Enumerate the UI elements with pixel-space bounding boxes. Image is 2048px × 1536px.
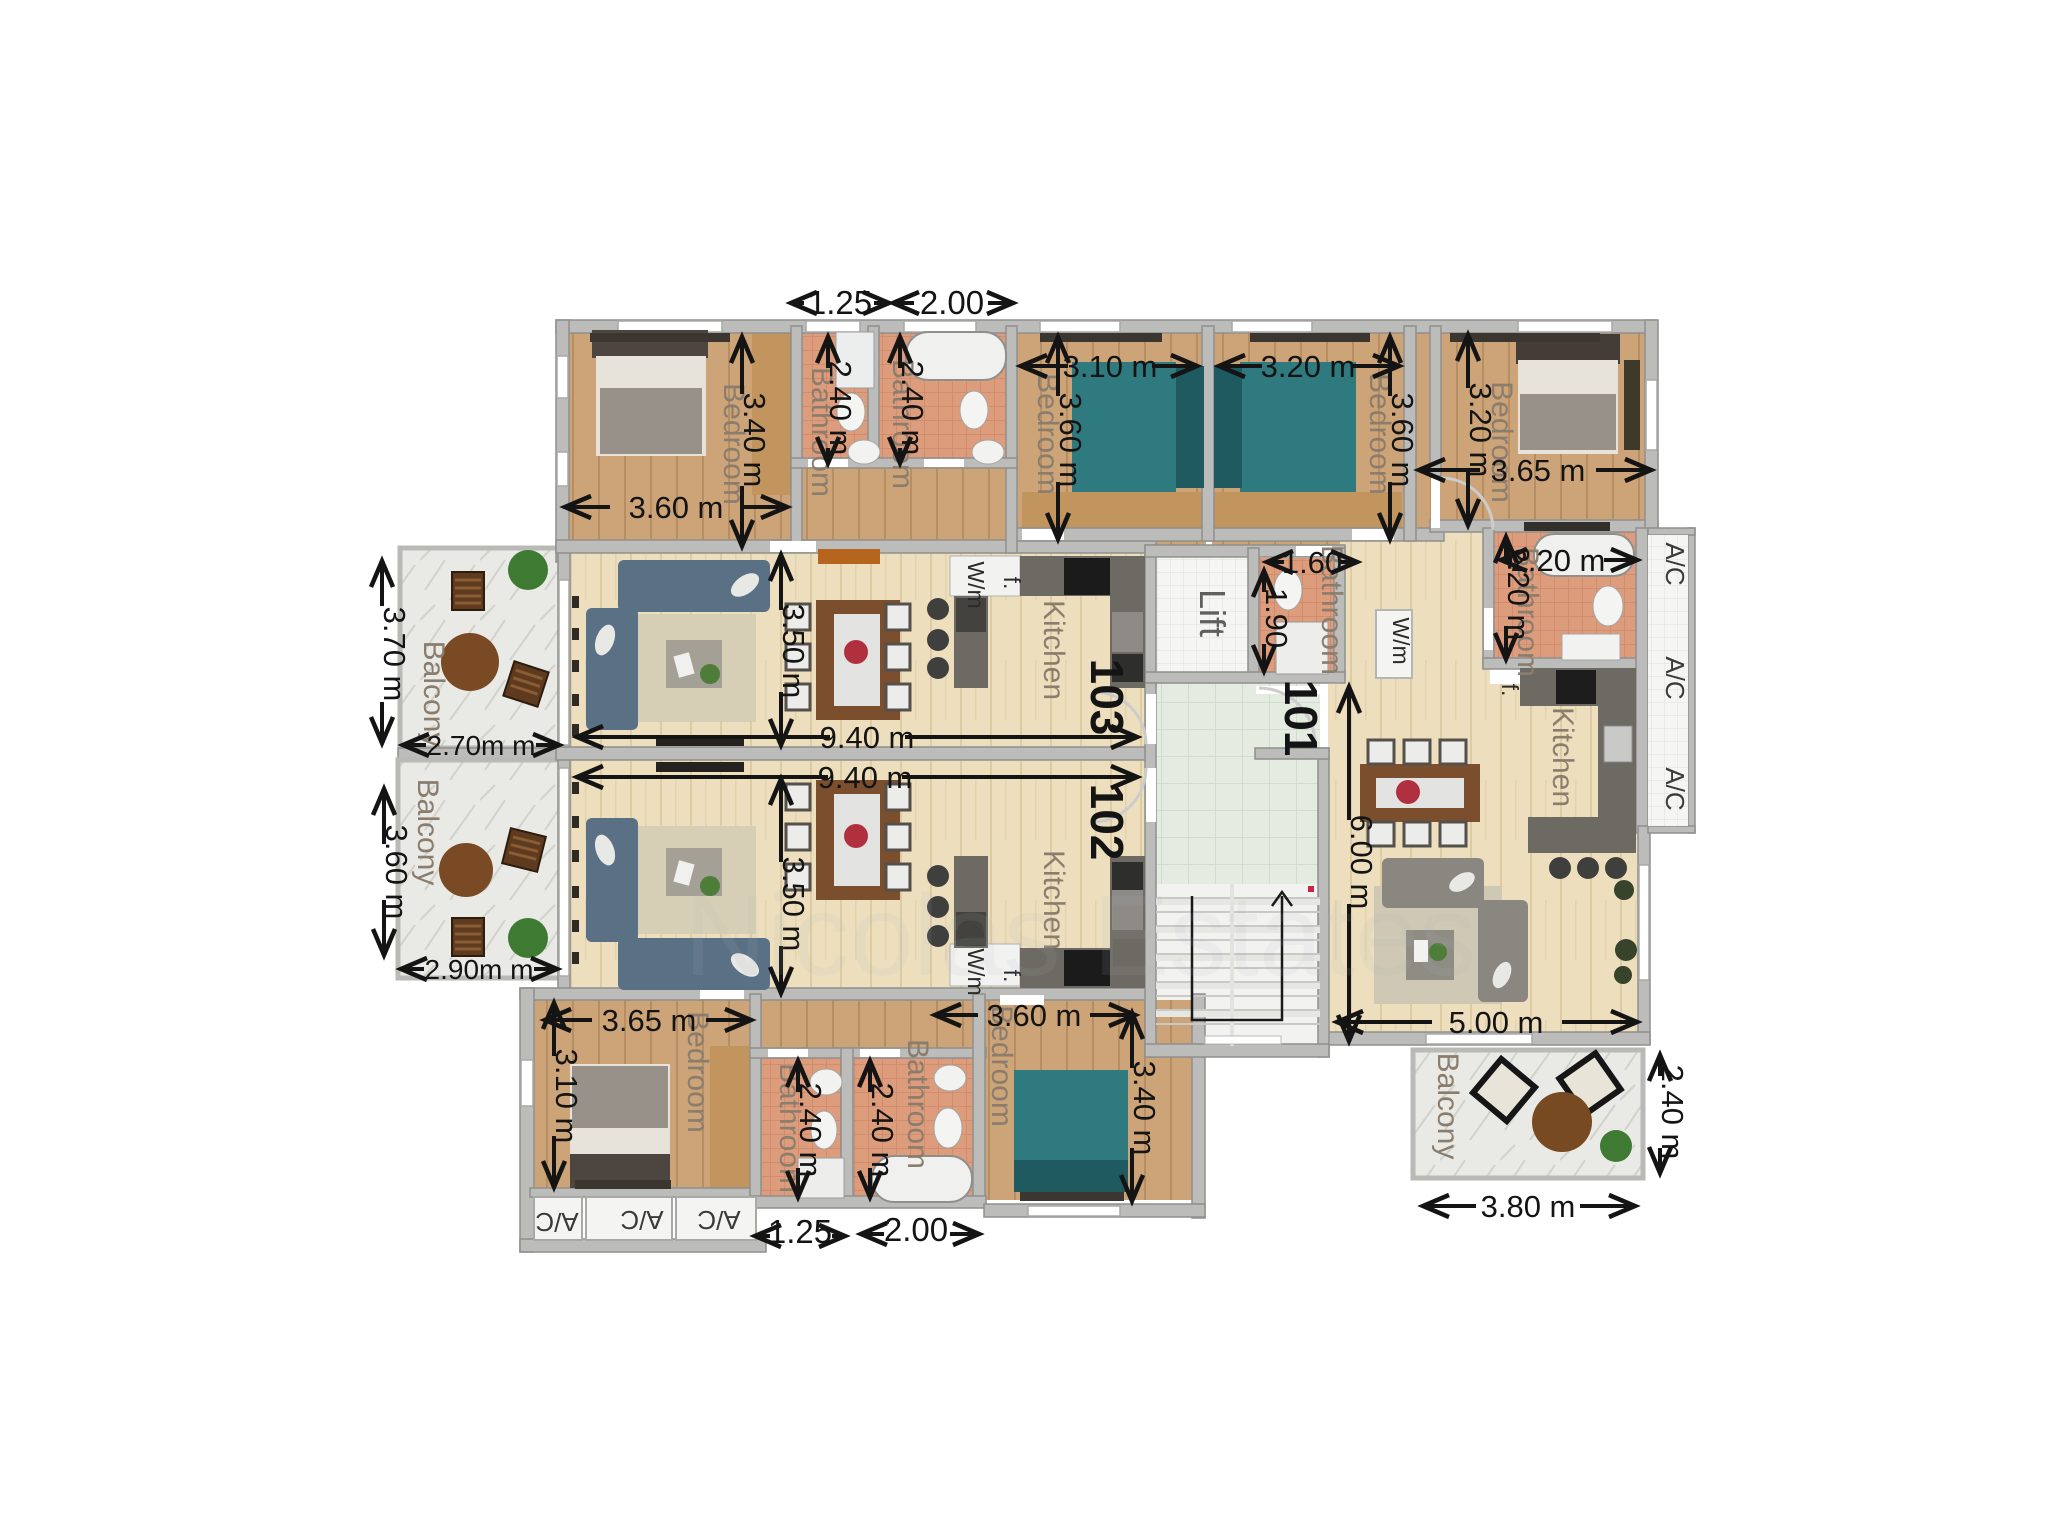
- svg-text:A/C: A/C: [697, 1205, 740, 1235]
- svg-text:Lift: Lift: [1192, 589, 1233, 637]
- svg-text:2.40 m: 2.40 m: [1655, 1065, 1690, 1160]
- svg-text:2.90m m: 2.90m m: [425, 954, 534, 985]
- svg-text:2.20 m: 2.20 m: [1501, 546, 1536, 641]
- svg-text:3.50 m: 3.50 m: [776, 604, 811, 699]
- svg-text:Balcony: Balcony: [1431, 1053, 1464, 1160]
- svg-text:3.40 m: 3.40 m: [737, 393, 772, 488]
- svg-text:2.00: 2.00: [884, 1211, 948, 1248]
- svg-text:9.40 m: 9.40 m: [818, 760, 913, 795]
- svg-text:3.60 m: 3.60 m: [629, 490, 724, 525]
- svg-text:103: 103: [1081, 659, 1133, 736]
- svg-text:9.40 m: 9.40 m: [820, 720, 915, 755]
- svg-text:A/C: A/C: [620, 1205, 663, 1235]
- svg-text:A/C: A/C: [1660, 656, 1690, 699]
- svg-text:3.60 m: 3.60 m: [987, 998, 1082, 1033]
- svg-text:3.65 m: 3.65 m: [602, 1003, 697, 1038]
- svg-text:A/C: A/C: [1660, 542, 1690, 585]
- svg-text:3.70 m: 3.70 m: [377, 607, 412, 702]
- svg-text:3.60 m: 3.60 m: [1385, 393, 1420, 488]
- svg-text:2.40 m: 2.40 m: [793, 1083, 828, 1178]
- svg-text:W/m: W/m: [1388, 617, 1414, 664]
- svg-text:A/C: A/C: [1660, 767, 1690, 810]
- svg-text:2.70m m: 2.70m m: [427, 730, 536, 761]
- svg-text:3.60 m: 3.60 m: [1053, 393, 1088, 488]
- svg-text:3.80 m: 3.80 m: [1481, 1189, 1576, 1224]
- svg-text:f.: f.: [999, 577, 1025, 590]
- svg-text:3.20 m: 3.20 m: [1261, 349, 1356, 384]
- svg-text:1.60: 1.60: [1282, 545, 1342, 580]
- svg-text:102: 102: [1081, 784, 1133, 861]
- svg-text:5.00 m: 5.00 m: [1449, 1005, 1544, 1040]
- svg-text:1.25: 1.25: [808, 284, 872, 321]
- svg-text:3.40 m: 3.40 m: [1127, 1061, 1162, 1156]
- svg-text:W/m: W/m: [963, 561, 989, 608]
- svg-text:3.60 m: 3.60 m: [379, 825, 414, 920]
- svg-text:2.00: 2.00: [920, 284, 984, 321]
- svg-text:101: 101: [1275, 680, 1327, 757]
- svg-text:Bathroom: Bathroom: [901, 1039, 934, 1169]
- svg-text:f.: f.: [1497, 684, 1523, 697]
- svg-text:2.40 m: 2.40 m: [823, 361, 858, 456]
- svg-text:A/C: A/C: [535, 1207, 578, 1237]
- svg-text:3.65 m: 3.65 m: [1491, 453, 1586, 488]
- svg-text:Nicolas Estates: Nicolas Estates: [684, 872, 1477, 1000]
- svg-text:2.40 m: 2.40 m: [865, 1083, 900, 1178]
- svg-text:Kitchen: Kitchen: [1037, 600, 1070, 700]
- svg-text:Kitchen: Kitchen: [1546, 707, 1579, 807]
- svg-text:1.25: 1.25: [768, 1213, 832, 1250]
- svg-text:Balcony: Balcony: [411, 779, 444, 886]
- svg-text:3.10 m: 3.10 m: [549, 1049, 584, 1144]
- svg-text:1.90: 1.90: [1259, 588, 1294, 648]
- svg-text:3.10 m: 3.10 m: [1063, 349, 1158, 384]
- svg-text:2.40 m: 2.40 m: [895, 361, 930, 456]
